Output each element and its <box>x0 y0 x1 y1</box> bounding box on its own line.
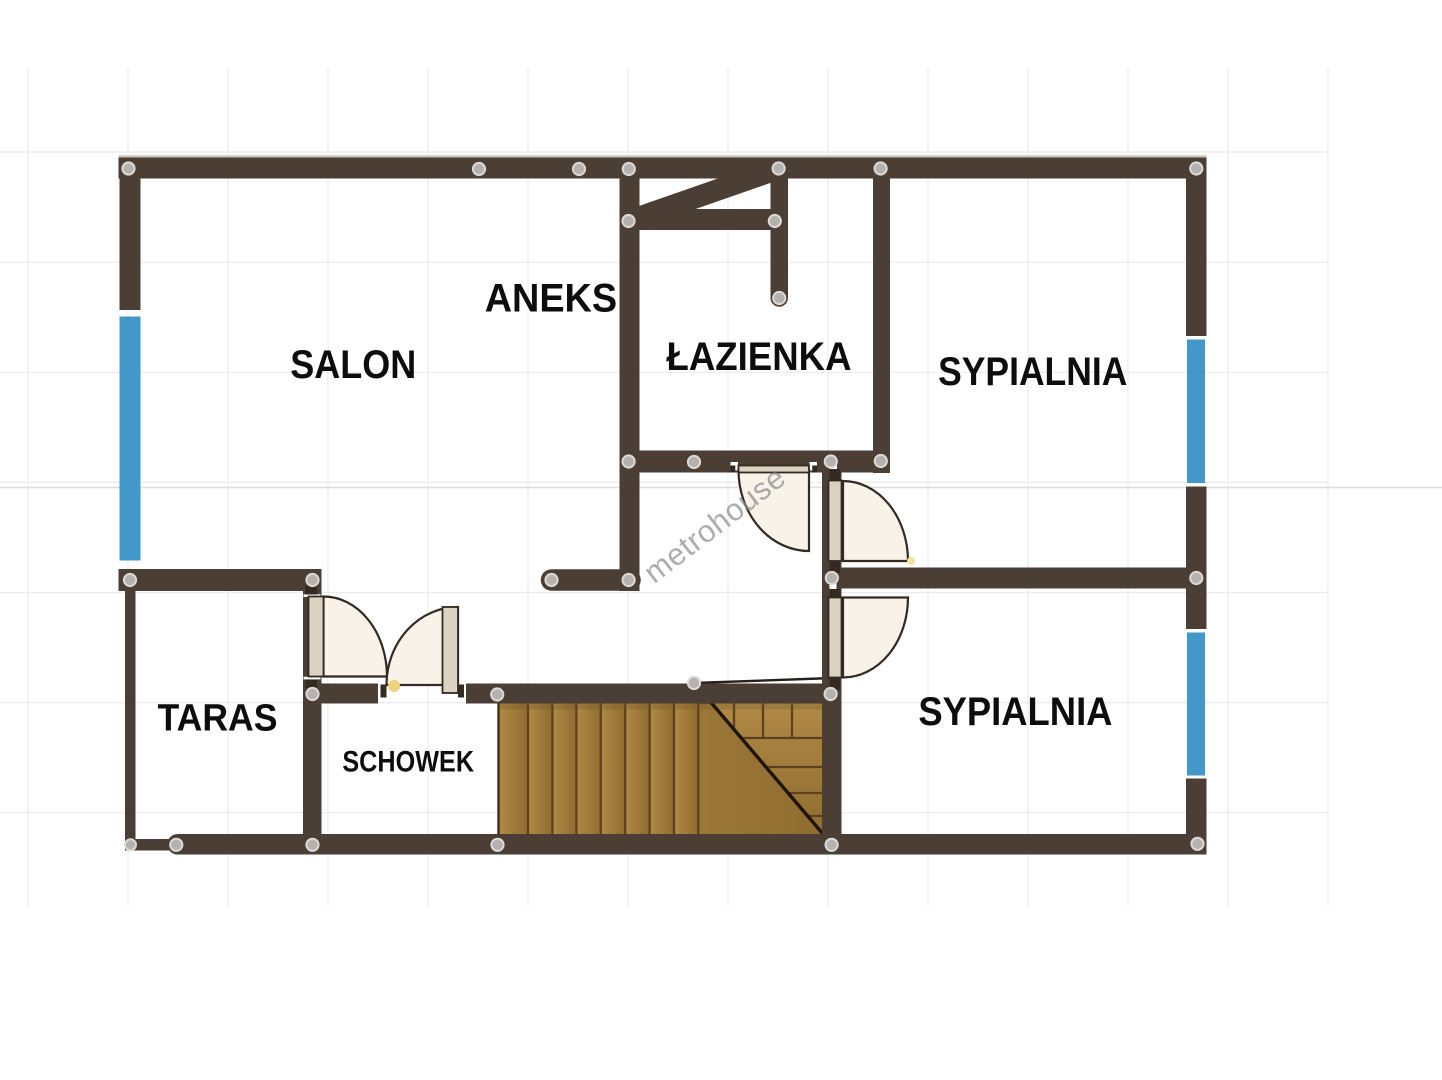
svg-text:ANEKS: ANEKS <box>485 277 617 321</box>
svg-text:SCHOWEK: SCHOWEK <box>342 745 474 778</box>
svg-text:TARAS: TARAS <box>158 696 278 738</box>
svg-text:SYPIALNIA: SYPIALNIA <box>918 689 1112 734</box>
svg-text:ŁAZIENKA: ŁAZIENKA <box>667 334 852 379</box>
svg-text:SYPIALNIA: SYPIALNIA <box>938 350 1127 394</box>
svg-text:SALON: SALON <box>290 344 416 388</box>
